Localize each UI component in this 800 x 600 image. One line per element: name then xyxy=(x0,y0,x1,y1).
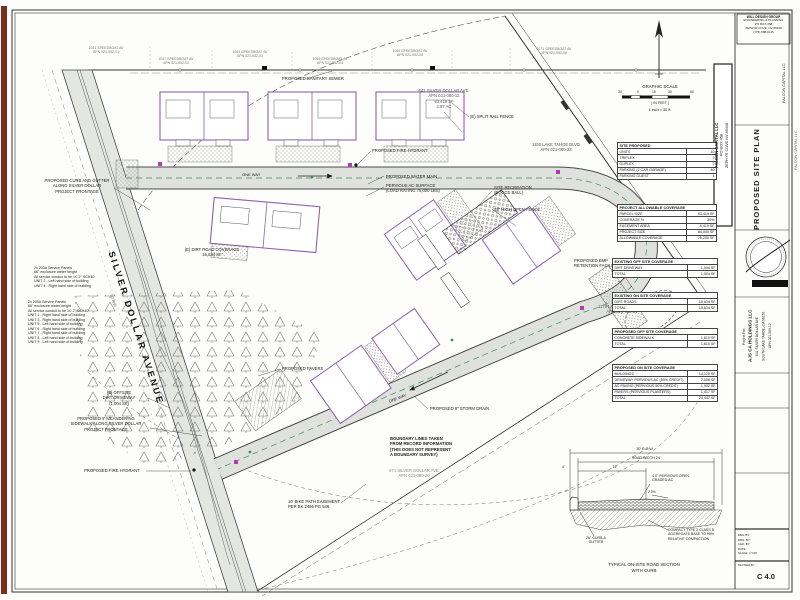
site-table-0: SITE PROPOSEDUNITS10TRIPLEX2DUPLEX2PARKI… xyxy=(617,142,717,180)
pavers-label: PROPOSED PAVERS xyxy=(282,366,323,371)
water-main-label: PROPOSED WATER MAIN xyxy=(386,174,437,179)
detail-surface-note: 4.0" PERVIOUS OPEN GRADED AC xyxy=(652,474,718,483)
adjacent-parcel-note: 1041 SPEEDBOAT AV APN 021-052-01 xyxy=(72,46,140,55)
sheet-number: C 4.0 xyxy=(746,572,786,581)
adjacent-parcel-note: 1053 SPEEDBOAT AV APN 021-052-03 xyxy=(216,50,284,59)
engineer-seal-stamp xyxy=(746,237,790,277)
site-table-2: EXISTING OFF SITE COVERAGEDIRT DRIVEWAY1… xyxy=(612,258,718,278)
table-row-label: ALLOWABLE COVERAGE xyxy=(618,235,687,241)
table-row-value: 24,447 SF xyxy=(688,395,718,401)
parcel-south-label: 671 SILVER DOLLAR AVE APN 021-080-20 xyxy=(378,468,450,479)
open-fence-label: 48" HIGH OPEN FENCE xyxy=(494,207,540,212)
bike-path-label: 10' BIKE PATH EASEMENT PER BK 2486 PG 54… xyxy=(288,499,340,510)
table-row-value: 25,200 SF xyxy=(687,235,717,241)
revised-label: REVISED BY xyxy=(738,563,790,567)
adjacent-parcel-note: 1065 SPEEDBOAT AV APN 021-052-05 xyxy=(376,49,444,58)
bmp-label: PROPOSED BMP RETENTION FACILITY xyxy=(574,258,618,269)
detail-row-dim: 30' R.O.W. xyxy=(600,447,690,451)
engineer-info-box-line: (775) 588-0115 xyxy=(738,31,789,35)
dirt-road-coverage-label: (E) DIRT ROAD COVERAGE 15,634 SF xyxy=(176,247,248,258)
adjacent-parcel-note: 1059 SPEEDBOAT AV APN 021-052-04 xyxy=(296,57,364,66)
pervious-ac-label: PERVIOUS AC SURFACE (LOAD RATING 75,000 … xyxy=(386,183,440,194)
client-side-label: FALCON CAPITAL LLC xyxy=(779,44,789,122)
detail-road-dim: ROAD WIDTH 24' xyxy=(604,456,688,460)
drawing-info-block-line: SCALE: 1"=30' xyxy=(738,551,790,556)
margin-side-label: FALCON CAPITAL LLC xyxy=(792,70,800,230)
lake-tahoe-parcel-1: 1150 LAKE TAHOE BLVD APN 021-080-33 xyxy=(520,142,592,153)
graphic-scale-bar xyxy=(622,96,690,99)
site-table-1: PROJECT ALLOWABLE COVERAGEPARCEL SIZE93,… xyxy=(617,204,717,242)
site-table-5: PROPOSED ON SITE COVERAGEBUILDINGS14,120… xyxy=(612,364,718,402)
table-row-label: TOTAL xyxy=(613,271,688,277)
scale-tick: 15 xyxy=(652,90,656,94)
client-address-box: FALCON CAPITAL LLCPO BOX 458ZEPHYR COVE … xyxy=(714,66,731,224)
service-panel-note-a: 2x 200A Service Panels 66" enclosure met… xyxy=(34,266,94,288)
split-rail-fence-label: (E) SPLIT RAIL FENCE xyxy=(470,114,514,119)
sanitary-sewer-label: PROPOSED SANITARY SEWER xyxy=(282,76,344,81)
scale-tick: 30 xyxy=(618,90,622,94)
fire-hydrant-label-1: PROPOSED FIRE HYDRANT xyxy=(372,148,428,153)
drawing-info-block: DES. BY:DRN. BY:CHK. BY:DATE:SCALE: 1"=3… xyxy=(738,533,790,556)
graphic-scale-units: ( IN FEET ) xyxy=(634,101,686,105)
scale-tick: 30 xyxy=(668,90,672,94)
project-for-block-line: APN 021-080-12 xyxy=(767,298,774,374)
bocce-label: SITE RECREATION (BOCCE BALL) xyxy=(494,185,532,196)
detail-curb-note: 26" CURB & GUTTER xyxy=(576,536,616,545)
scale-tick: 60 xyxy=(690,90,694,94)
curb-gutter-note: PROPOSED CURB AND GUTTER ALONG SILVER DO… xyxy=(40,178,114,194)
table-row-label: TOTAL xyxy=(613,305,688,311)
detail-curb-dim: 4' xyxy=(562,465,565,469)
table-row-value: 1,810 SF xyxy=(688,341,718,347)
table-row-label: TOTAL xyxy=(613,341,688,347)
parcel-info-label: 641 SILVER DOLLAR AVE. APN 021-080-12 93… xyxy=(402,88,486,109)
detail-base-note: COMPACT TYPE 2 CLASS B AGGREGATE BASE TO… xyxy=(668,528,726,541)
detail-half-dim: 12' xyxy=(600,465,630,469)
service-panel-note-b: 2x 200A Service Panels 66" enclosure met… xyxy=(28,300,88,345)
engineer-info-box: WILL DESIGN GROUPENGINEERING & PLANNINGP… xyxy=(738,15,789,43)
one-way-top-label: ONE WAY xyxy=(242,172,260,177)
project-for-block: Project For:AJS CA HOLDINGS LLC641 SILVE… xyxy=(741,298,789,374)
detail-slope-note: 2.0% xyxy=(648,490,656,494)
adjacent-parcel-note: 1047 SPEEDBOAT AV APN 021-052-02 xyxy=(142,57,210,66)
adjacent-parcel-note: 1071 SPEEDBOAT AV APN 021-052-06 xyxy=(520,47,588,56)
detail-title: TYPICAL ON-SITE ROAD SECTION WITH CURB xyxy=(582,562,706,573)
sheet-title: PROPOSED SITE PLAN xyxy=(747,128,767,230)
scale-tick: 0 xyxy=(637,90,639,94)
table-row-label: PARKING GUEST xyxy=(618,173,687,179)
site-table-4: PROPOSED OFF SITE COVERAGECONCRETE SIDEW… xyxy=(612,328,718,348)
fire-hydrant-label-2: PROPOSED FIRE HYDRANT xyxy=(84,468,140,473)
client-address-box-line: ZEPHYR COVE NV 89448 xyxy=(725,66,731,224)
graphic-scale-note: 1 inch = 30 ft. xyxy=(632,108,688,113)
sidewalk-note: PROPOSED 5' MEANDERING SIDEWALK ALONG SI… xyxy=(62,416,150,432)
dirt-driveway-label: (E) OFFSITE DIRT DRIVEWAY (1,004 SF) xyxy=(90,390,148,406)
site-table-3: EXISTING ON SITE COVERAGEDIRT ROADS15,63… xyxy=(612,292,718,312)
site-plan-sheet: SILVER DOLLAR AVENUEONE WAYONE WAYPROPOS… xyxy=(0,0,800,600)
boundary-note: BOUNDARY LINES TAKEN FROM RECORD INFORMA… xyxy=(390,436,452,457)
table-row-value: 15,634 SF xyxy=(688,305,718,311)
north-arrow-icon xyxy=(655,20,663,78)
storm-drain-label: PROPOSED 8" STORM DRAIN xyxy=(430,406,489,411)
road-section-detail xyxy=(570,449,722,536)
table-row-value: 4 xyxy=(687,173,717,179)
table-row-value: 1,004 SF xyxy=(688,271,718,277)
seal-date-bar xyxy=(752,280,788,287)
table-row-label: TOTAL xyxy=(613,395,688,401)
graphic-scale-title: GRAPHIC SCALE xyxy=(628,84,692,90)
